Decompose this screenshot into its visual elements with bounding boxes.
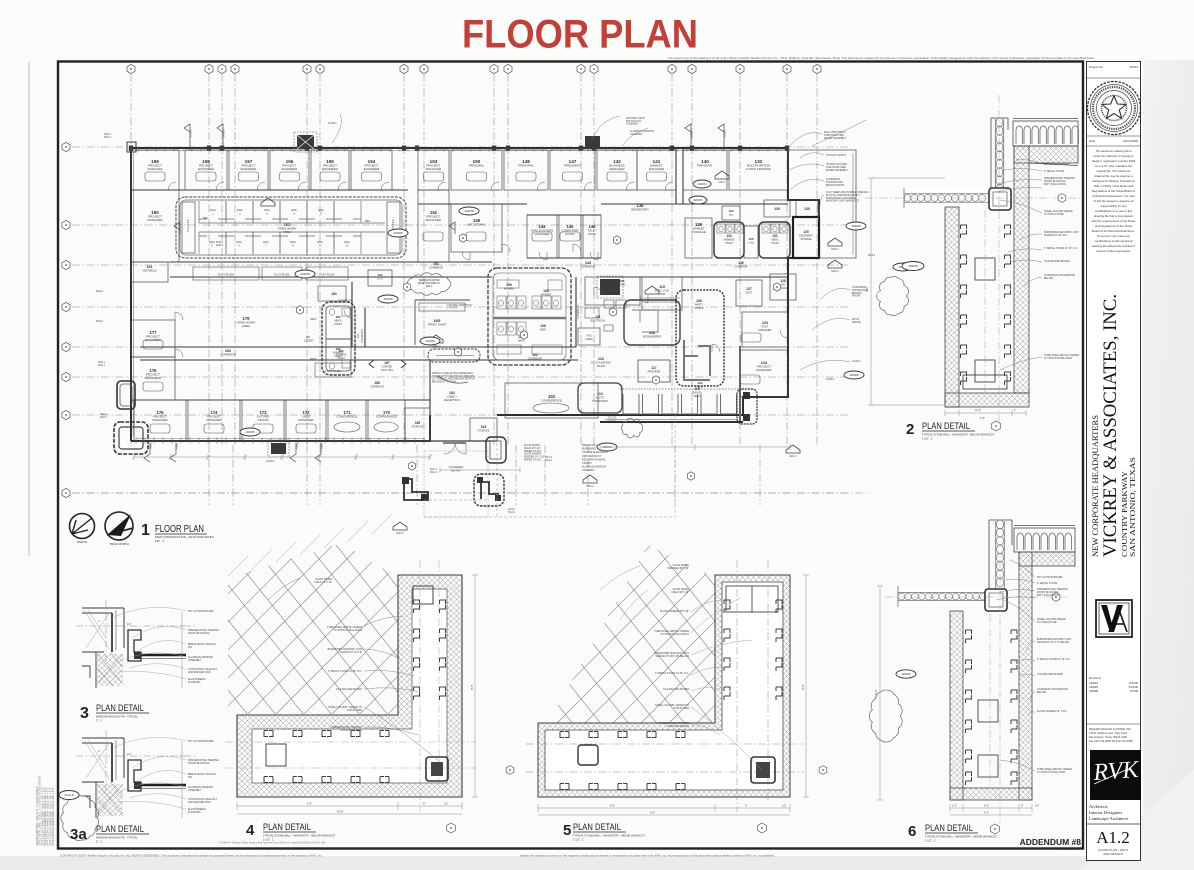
svg-text:FLOOR PLAN: FLOOR PLAN <box>462 13 698 57</box>
svg-text:ASSEMBLY: ASSEMBLY <box>630 133 643 136</box>
svg-text:drawing file may be used as a: drawing file may be used as a <box>1094 174 1133 178</box>
svg-text:164: 164 <box>377 273 382 277</box>
svg-text:5/8" GYPSUM BOARD: 5/8" GYPSUM BOARD <box>188 740 214 743</box>
svg-text:CORR.: CORR. <box>747 243 754 245</box>
svg-text:1/A4.1: 1/A4.1 <box>718 180 726 184</box>
svg-text:180: 180 <box>335 315 340 319</box>
svg-text:4: 4 <box>246 822 255 839</box>
svg-text:129: 129 <box>803 230 809 234</box>
svg-text:TRUE NORTH: TRUE NORTH <box>109 542 129 546</box>
svg-text:LOBBY /: LOBBY / <box>447 395 457 399</box>
svg-text:168: 168 <box>374 381 380 385</box>
svg-text:PLAN DETAIL: PLAN DETAIL <box>573 822 621 832</box>
svg-text:DECORATIVE METAL: DECORATIVE METAL <box>582 458 606 461</box>
svg-text:WAINSCOT 48"X 48" BELOW: WAINSCOT 48"X 48" BELOW <box>656 655 690 658</box>
svg-text:5/A6.1: 5/A6.1 <box>831 247 839 251</box>
svg-text:ELECTRICAL: ELECTRICAL <box>591 320 606 323</box>
svg-text:ADD#4: ADD#4 <box>697 182 706 186</box>
svg-text:136: 136 <box>738 261 744 265</box>
svg-text:3" : 1': 3" : 1' <box>96 719 103 723</box>
svg-text:BEC.: BEC. <box>365 219 371 223</box>
svg-text:WALL: WALL <box>426 285 433 288</box>
svg-text:WOMEN: WOMEN <box>504 287 514 291</box>
svg-text:ENGINEER: ENGINEER <box>145 376 162 380</box>
svg-text:PRINCIPAL: PRINCIPAL <box>469 164 485 168</box>
svg-text:ATTACHMENT "A": ATTACHMENT "A" <box>1056 847 1081 851</box>
svg-text:01/23/2008: 01/23/2008 <box>1123 139 1138 143</box>
svg-text:CONCRETE MASONRY: CONCRETE MASONRY <box>582 451 609 454</box>
svg-text:ENG: ENG <box>264 208 270 212</box>
svg-text:12/A6.1: 12/A6.1 <box>826 378 835 381</box>
svg-text:BROOM FINISH: BROOM FINISH <box>826 184 845 187</box>
svg-text:TILE BACKER BOARD: TILE BACKER BOARD <box>1037 673 1063 676</box>
svg-text:NORTH: NORTH <box>77 540 88 544</box>
svg-text:2: 2 <box>906 421 914 438</box>
svg-text:WAINSCOT 16"X 8": WAINSCOT 16"X 8" <box>340 651 362 654</box>
svg-text:163: 163 <box>331 292 337 296</box>
svg-text:PLAN DETAIL: PLAN DETAIL <box>922 421 970 431</box>
svg-text:TOILET: TOILET <box>334 324 343 326</box>
svg-text:5/A1.2: 5/A1.2 <box>508 511 516 514</box>
svg-text:745 E. Mulberry Ave. Sixty Fl: 745 E. Mulberry Ave. Sixty Floor <box>1089 731 1127 735</box>
svg-text:ASSEMBLY: ASSEMBLY <box>582 469 595 472</box>
svg-text:8/A6.2: 8/A6.2 <box>96 290 104 293</box>
svg-text:drawing file without the Archi: drawing file without the Architect's <box>1092 244 1136 248</box>
svg-text:MEN'S: MEN'S <box>334 321 342 323</box>
svg-text:EQUIPMENT: EQUIPMENT <box>799 236 813 238</box>
svg-text:TYPICAL STONE WALL - MAIN ENTR: TYPICAL STONE WALL - MAIN ENTRY - ABOVE … <box>925 835 997 839</box>
svg-text:8/A6.1: 8/A6.1 <box>100 416 108 419</box>
svg-text:ALUMINUM WINDOW: ALUMINUM WINDOW <box>582 466 607 469</box>
svg-text:8/A6.1: 8/A6.1 <box>295 440 299 448</box>
svg-text:1/2": 1/2" <box>444 802 449 806</box>
svg-text:8/A6.1: 8/A6.1 <box>868 254 876 257</box>
svg-text:CONFERENCE: CONFERENCE <box>541 399 562 403</box>
svg-text:1/A8.2: 1/A8.2 <box>690 129 694 137</box>
svg-text:ADD#8: ADD#8 <box>849 373 858 377</box>
svg-text:TILE BACKER BOARD: TILE BACKER BOARD <box>1044 260 1070 263</box>
svg-text:130: 130 <box>804 207 810 211</box>
svg-text:of this file agrees to assume: of this file agrees to assume all <box>1094 199 1134 203</box>
svg-text:BEC.: BEC. <box>203 216 209 220</box>
svg-text:6" METAL STUDS AT 16" O.C.: 6" METAL STUDS AT 16" O.C. <box>655 672 689 675</box>
svg-text:LUNCH TRAINING: LUNCH TRAINING <box>746 167 772 171</box>
svg-text:127: 127 <box>746 287 752 291</box>
svg-text:MEN: MEN <box>518 339 524 343</box>
svg-text:FLAT FILES: FLAT FILES <box>319 273 334 277</box>
svg-text:109: 109 <box>506 283 512 287</box>
svg-text:FLASHING: FLASHING <box>188 811 201 814</box>
svg-text:3'-6" A.F.F.: 3'-6" A.F.F. <box>447 307 458 310</box>
svg-text:Project No.: Project No. <box>1089 65 1104 69</box>
svg-text:ENG: ENG <box>318 208 324 212</box>
svg-text:SLATE VENEER 16" X 16": SLATE VENEER 16" X 16" <box>1037 710 1067 713</box>
svg-text:No person may make any: No person may make any <box>1097 234 1130 238</box>
svg-text:12/A5.1: 12/A5.1 <box>852 360 861 363</box>
svg-text:drawing file that is inconsist: drawing file that is inconsistent <box>1094 214 1133 218</box>
svg-text:133: 133 <box>728 209 733 213</box>
svg-text:6" METAL STUDS: 6" METAL STUDS <box>1037 582 1058 585</box>
svg-text:NEW CORPORATE HEADQUARTERS: NEW CORPORATE HEADQUARTERS <box>1091 415 1100 557</box>
svg-text:COPYRIGHT 2008 © Rehler Vaug: COPYRIGHT 2008 © Rehler Vaughn & Koone, … <box>60 854 323 858</box>
svg-text:TOILET: TOILET <box>725 243 734 245</box>
svg-text:Interior Designers: Interior Designers <box>1089 810 1123 815</box>
svg-text:BELOW: BELOW <box>1044 277 1054 280</box>
svg-text:ADD#6: ADD#6 <box>693 198 702 202</box>
svg-text:ENG: ENG <box>236 240 242 244</box>
svg-text:CLOS.: CLOS. <box>377 279 384 281</box>
svg-text:CORRIDOR: CORRIDOR <box>528 357 542 361</box>
svg-text:3: 3 <box>80 705 89 722</box>
svg-text:background drawing. Pursuant: background drawing. Pursuant to <box>1092 179 1135 183</box>
svg-text:ENG: ENG <box>209 240 215 244</box>
svg-text:FIN: FIN <box>188 776 192 779</box>
svg-text:TILE BACKER BOARD: TILE BACKER BOARD <box>663 688 689 691</box>
svg-text:166: 166 <box>356 333 360 338</box>
svg-text:MANAGER: MANAGER <box>147 167 163 171</box>
svg-text:WOOD BLOCKING: WOOD BLOCKING <box>667 725 689 728</box>
svg-text:ENG: ENG <box>210 208 216 212</box>
svg-text:108: 108 <box>543 289 549 293</box>
svg-text:PLAN DETAIL: PLAN DETAIL <box>263 822 311 832</box>
svg-text:ADD#8: ADD#8 <box>245 430 254 434</box>
svg-text:FLAT FILES: FLAT FILES <box>325 369 340 373</box>
svg-text:TOILET: TOILET <box>337 358 346 360</box>
svg-text:6" METAL STUDS AT 16" O.C.: 6" METAL STUDS AT 16" O.C. <box>1037 658 1071 661</box>
svg-text:WAINSCOT 48" ILM: WAINSCOT 48" ILM <box>1044 234 1067 237</box>
svg-text:A1.2: A1.2 <box>1096 828 1130 847</box>
svg-text:BATT INSULATION: BATT INSULATION <box>1037 594 1059 597</box>
svg-text:8'-0": 8'-0" <box>610 804 615 808</box>
svg-text:ENG: ENG <box>237 208 243 212</box>
svg-text:ENG: ENG <box>290 240 296 244</box>
svg-text:PRESIDENT: PRESIDENT <box>564 164 581 168</box>
svg-text:The record copy of this drawin: The record copy of this drawing is on fi… <box>668 56 1095 60</box>
svg-text:VEST.: VEST. <box>310 358 317 361</box>
svg-text:BASE THIS SIDE OF: BASE THIS SIDE OF <box>418 282 440 285</box>
svg-text:VEST.: VEST. <box>310 318 317 321</box>
svg-text:123: 123 <box>762 321 768 325</box>
svg-text:130: 130 <box>774 207 780 211</box>
svg-text:TERMINATE WOOD: TERMINATE WOOD <box>418 279 439 282</box>
svg-text:8/A6.1: 8/A6.1 <box>104 136 112 139</box>
svg-text:116: 116 <box>649 331 655 335</box>
svg-text:with the requirements of the R: with the requirements of the Rules <box>1092 219 1136 223</box>
svg-text:Regulations of the Texas Board: Regulations of the Texas Board of <box>1092 189 1136 193</box>
svg-text:CLOSET: CLOSET <box>304 339 314 342</box>
svg-text:ADD#8: ADD#8 <box>901 672 910 676</box>
svg-text:STORAGE: STORAGE <box>412 426 424 429</box>
svg-text:CONFERENCE: CONFERENCE <box>336 415 357 419</box>
svg-text:8/A6.1: 8/A6.1 <box>216 244 224 247</box>
svg-text:FIELD 16"X 16": FIELD 16"X 16" <box>315 581 333 584</box>
svg-text:ASSEMBLY: ASSEMBLY <box>626 123 639 126</box>
svg-text:FILES: FILES <box>597 364 605 368</box>
svg-text:2/A8.2: 2/A8.2 <box>222 129 226 137</box>
svg-text:115: 115 <box>659 285 665 289</box>
svg-text:SUPERVISOR: SUPERVISOR <box>592 400 608 403</box>
svg-text:WOMENS: WOMENS <box>336 355 347 357</box>
svg-text:128: 128 <box>780 279 786 283</box>
svg-text:ADDENDUM #8: ADDENDUM #8 <box>1020 837 1082 847</box>
svg-text:1'-0": 1'-0" <box>952 805 957 808</box>
svg-text:MENS: MENS <box>772 240 779 242</box>
svg-text:167: 167 <box>384 361 390 365</box>
svg-text:ENGINEER: ENGINEER <box>198 167 215 171</box>
svg-text:1/2": 1/2" <box>782 804 787 808</box>
svg-text:8/A6.1: 8/A6.1 <box>149 440 153 448</box>
svg-text:FILES: FILES <box>609 420 616 423</box>
svg-text:6'-0": 6'-0" <box>307 802 312 806</box>
svg-text:3" : 1': 3" : 1' <box>96 840 103 844</box>
svg-text:express written permission.: express written permission. <box>1096 249 1131 253</box>
svg-text:MANAGER: MANAGER <box>649 167 665 171</box>
svg-text:5/8" GYPSUM BOARD: 5/8" GYPSUM BOARD <box>1044 163 1070 166</box>
svg-text:FILE: FILE <box>587 336 592 338</box>
svg-text:FIELD 48"X 48": FIELD 48"X 48" <box>672 591 690 594</box>
svg-text:PICK-UPS: PICK-UPS <box>381 369 393 372</box>
svg-text:169: 169 <box>415 421 421 425</box>
svg-text:CORRIDOR: CORRIDOR <box>429 266 443 270</box>
svg-text:6" METAL STUDS AT 16" O.C.: 6" METAL STUDS AT 16" O.C. <box>328 670 362 673</box>
svg-text:8/A6.1: 8/A6.1 <box>320 440 324 448</box>
svg-text:ENG: ENG <box>291 208 297 212</box>
svg-text:LOW WALL PARTITION: LOW WALL PARTITION <box>447 304 472 307</box>
svg-text:AREA: AREA <box>242 324 250 328</box>
svg-text:responsibility for any: responsibility for any <box>1100 204 1127 208</box>
svg-text:Rule 1.105(b) of the Rules and: Rule 1.105(b) of the Rules and <box>1094 184 1134 188</box>
svg-text:Architects: Architects <box>1089 804 1108 809</box>
svg-text:The electronic drawing file is: The electronic drawing file is <box>1095 149 1132 153</box>
svg-text:8'-8": 8'-8" <box>470 684 474 690</box>
svg-text:TO STRUCTURE: TO STRUCTURE <box>1037 621 1057 624</box>
svg-text:ASSEMBLY: ASSEMBLY <box>188 659 202 662</box>
svg-text:4": 4" <box>1014 409 1016 412</box>
svg-text:REFER TO A8.1: REFER TO A8.1 <box>524 459 542 462</box>
svg-text:1: 1 <box>141 522 150 539</box>
svg-text:San Antonio, Texas 78212-3166: San Antonio, Texas 78212-3166 <box>1089 735 1128 739</box>
svg-text:WINDOW MAULING FIN - TYPICAL: WINDOW MAULING FIN - TYPICAL <box>96 836 138 840</box>
svg-text:ENG: ENG <box>344 240 350 244</box>
svg-text:9/A4.1: 9/A4.1 <box>586 484 594 488</box>
svg-text:1": 1" <box>98 750 100 753</box>
svg-text:9'-0": 9'-0" <box>650 811 655 815</box>
svg-text:105: 105 <box>569 309 573 314</box>
svg-text:117: 117 <box>651 366 656 370</box>
svg-text:MANAGER: MANAGER <box>147 218 163 222</box>
svg-text:ENGINEER: ENGINEER <box>241 167 258 171</box>
svg-text:1/2": 1/2" <box>127 623 131 626</box>
svg-text:5/8" GYPSUM BOARD: 5/8" GYPSUM BOARD <box>1037 576 1063 579</box>
svg-text:FLAT FILE: FLAT FILE <box>186 219 190 232</box>
svg-text:CANOPY: CANOPY <box>582 462 593 465</box>
svg-text:FINISH: FINISH <box>852 295 860 298</box>
svg-text:ABOVE: ABOVE <box>852 321 861 324</box>
svg-text:Vaughn, registration number 54: Vaughn, registration number 5433 <box>1092 159 1136 163</box>
svg-text:151: 151 <box>433 262 439 266</box>
svg-text:ADD#8: ADD#8 <box>1089 689 1098 693</box>
svg-text:TO STRUCTURE: TO STRUCTURE <box>1044 213 1064 216</box>
svg-text:134: 134 <box>726 234 732 238</box>
svg-text:11'-2": 11'-2" <box>975 409 981 412</box>
svg-text:131: 131 <box>772 234 778 238</box>
svg-text:SECRETARY: SECRETARY <box>467 223 485 227</box>
svg-text:AND BACKER ROD: AND BACKER ROD <box>188 671 211 674</box>
svg-text:1-1/2" : 1': 1-1/2" : 1' <box>922 437 933 441</box>
svg-text:2'-0": 2'-0" <box>980 417 985 420</box>
svg-text:ROOM: ROOM <box>565 232 575 236</box>
svg-text:CHIEFS: CHIEFS <box>694 307 704 310</box>
svg-text:9": 9" <box>1021 805 1023 808</box>
svg-text:UNIT WAINSCOT: UNIT WAINSCOT <box>582 455 602 458</box>
svg-text:CORRIDOR: CORRIDOR <box>581 265 595 269</box>
svg-text:BELOW: BELOW <box>1037 691 1047 694</box>
svg-text:TO STRUCTURAL PAINT: TO STRUCTURAL PAINT <box>333 629 362 632</box>
svg-text:6/A4.1: 6/A4.1 <box>789 454 797 458</box>
svg-text:TYPICAL STONE WALL - MAIN ENTR: TYPICAL STONE WALL - MAIN ENTRY - BELOW … <box>922 433 995 437</box>
svg-text:FIN: FIN <box>188 646 192 649</box>
svg-text:WOOD BLOCKING: WOOD BLOCKING <box>340 729 362 732</box>
svg-text:STUCCO SOFFIT: STUCCO SOFFIT <box>826 154 847 157</box>
svg-text:TOILET: TOILET <box>771 243 780 245</box>
svg-text:1/A8.2: 1/A8.2 <box>189 129 193 137</box>
svg-text:ADD#8: ADD#8 <box>383 297 392 301</box>
svg-text:VICKREY & ASSOCIATES, INC.: VICKREY & ASSOCIATES, INC. <box>1101 294 1121 557</box>
svg-text:STORAGE: STORAGE <box>478 430 490 433</box>
svg-text:PLAN DETAIL: PLAN DETAIL <box>96 824 144 834</box>
svg-text:1/8" : 1': 1/8" : 1' <box>155 539 165 543</box>
svg-text:PLAN DETAIL: PLAN DETAIL <box>925 823 973 833</box>
svg-text:MANAGER: MANAGER <box>426 218 442 222</box>
svg-text:MANAGER: MANAGER <box>534 232 550 236</box>
svg-text:SLATE VENEER 48"X 48": SLATE VENEER 48"X 48" <box>660 610 689 613</box>
svg-text:MANAGER: MANAGER <box>609 167 625 171</box>
svg-text:2/A8.2: 2/A8.2 <box>723 129 727 137</box>
svg-text:ASST.: ASST. <box>761 325 768 329</box>
svg-text:CORRIDOR: CORRIDOR <box>576 305 580 319</box>
svg-text:9/A4.1: 9/A4.1 <box>396 531 404 535</box>
svg-text:9": 9" <box>745 804 747 808</box>
svg-text:8/A1.1: 8/A1.1 <box>430 471 438 474</box>
svg-text:104: 104 <box>481 425 487 429</box>
svg-text:Revisions: Revisions <box>1089 676 1102 680</box>
svg-text:8/4/08: 8/4/08 <box>1130 689 1138 693</box>
svg-text:SAN ANTONIO, TEXAS: SAN ANTONIO, TEXAS <box>1128 457 1137 557</box>
svg-text:1-1/2" : 1': 1-1/2" : 1' <box>925 839 936 843</box>
svg-text:8/A6.1: 8/A6.1 <box>175 440 179 448</box>
svg-text:11/A9.1: 11/A9.1 <box>266 459 275 463</box>
svg-text:SECRETARY: SECRETARY <box>631 208 649 212</box>
svg-text:PRINTERS: PRINTERS <box>648 371 661 374</box>
svg-text:9": 9" <box>423 802 425 806</box>
svg-text:102: 102 <box>532 353 538 357</box>
svg-text:RATED ASSEMBLY: RATED ASSEMBLY <box>826 169 848 172</box>
svg-text:ADD#8: ADD#8 <box>851 224 860 228</box>
svg-text:WINDOW MAULING FIN - TYPICAL: WINDOW MAULING FIN - TYPICAL <box>96 715 138 719</box>
svg-text:BORDER 48"X 48": BORDER 48"X 48" <box>668 567 689 570</box>
svg-text:FLASHING: FLASHING <box>188 681 201 684</box>
svg-text:TO STRUCTURAL PAINT: TO STRUCTURAL PAINT <box>1037 771 1066 774</box>
svg-text:and Regulations of the Texas: and Regulations of the Texas <box>1095 224 1133 228</box>
svg-text:RATED ASSEMBLY: RATED ASSEMBLY <box>824 137 846 140</box>
svg-text:PRINCIPAL: PRINCIPAL <box>697 164 713 168</box>
svg-text:modifications to or use of thi: modifications to or use of this <box>1095 209 1133 213</box>
svg-text:Fax 210-733-3535 Tel 210-733-: Fax 210-733-3535 Tel 210-733-3535 <box>1089 739 1133 743</box>
svg-text:SCALE: SCALE <box>64 793 73 797</box>
svg-text:ADD#8: ADD#8 <box>425 339 434 343</box>
svg-text:8/A1.2: 8/A1.2 <box>545 459 553 462</box>
svg-text:BURNISHED: BURNISHED <box>582 448 596 451</box>
svg-text:1": 1" <box>98 620 100 623</box>
svg-text:ENTRY: ENTRY <box>451 469 461 473</box>
svg-text:MANAGER: MANAGER <box>756 368 772 372</box>
svg-text:BOOKKEEPER: BOOKKEEPER <box>643 335 661 339</box>
svg-text:MASONRY UNIT WAINSCOT: MASONRY UNIT WAINSCOT <box>826 200 860 203</box>
svg-text:VEST.: VEST. <box>746 292 753 295</box>
svg-text:143: 143 <box>585 261 591 265</box>
svg-text:161: 161 <box>147 265 153 269</box>
svg-text:under the authority of George: under the authority of George F. <box>1093 154 1134 158</box>
svg-text:5: 5 <box>563 822 571 839</box>
svg-text:ADD#8: ADD#8 <box>300 272 309 276</box>
svg-text:STRUCTURE: STRUCTURE <box>674 707 690 710</box>
svg-text:AREA: AREA <box>283 230 291 234</box>
svg-text:ADD#8: ADD#8 <box>908 264 917 268</box>
svg-text:5/A6.2: 5/A6.2 <box>831 269 839 273</box>
svg-text:AND DETAILS: AND DETAILS <box>1103 852 1122 856</box>
svg-text:Architectural Examiners, the u: Architectural Examiners, the user <box>1092 194 1135 198</box>
svg-text:6: 6 <box>908 823 916 840</box>
svg-text:REHLER VAUGHN & KOONE, INC.: REHLER VAUGHN & KOONE, INC. <box>1089 727 1132 731</box>
svg-text:original file. This electroni: original file. This electronic <box>1096 169 1131 173</box>
svg-text:WOMENS: WOMENS <box>724 240 735 242</box>
svg-text:MANAGER: MANAGER <box>152 418 168 422</box>
svg-text:JAN.: JAN. <box>729 214 734 217</box>
svg-text:BREAK METAL RAILING: BREAK METAL RAILING <box>188 773 216 776</box>
svg-text:Landscape Architects: Landscape Architects <box>1089 816 1129 821</box>
svg-text:WOOD BLOCKING: WOOD BLOCKING <box>188 632 210 635</box>
svg-text:Neither the printed document n: Neither the printed document nor the mag… <box>520 854 775 858</box>
svg-text:MANAGER: MANAGER <box>426 167 442 171</box>
svg-text:CORRIDOR: CORRIDOR <box>370 386 384 389</box>
svg-text:ENGINEER: ENGINEER <box>322 167 339 171</box>
svg-text:BATT INSULATION: BATT INSULATION <box>1044 183 1066 186</box>
svg-text:BREAK METAL RAILING: BREAK METAL RAILING <box>188 643 216 646</box>
svg-text:Date: Date <box>1089 139 1096 143</box>
svg-text:182: 182 <box>338 349 343 353</box>
svg-text:8'-8": 8'-8" <box>801 684 805 690</box>
svg-text:111: 111 <box>595 315 600 319</box>
svg-text:126: 126 <box>696 299 702 303</box>
svg-text:120: 120 <box>697 381 702 385</box>
svg-text:5'-0": 5'-0" <box>984 805 989 808</box>
svg-text:WAINSCOT 16"X 8" BELOW: WAINSCOT 16"X 8" BELOW <box>1037 641 1070 644</box>
svg-text:CLERK: CLERK <box>585 339 593 341</box>
svg-text:UTPT1-CDSPLE NAME5.DWG - SCALE: UTPT1-CDSPLE NAME5.DWG - SCALE: 3/4" = 1… <box>52 787 55 846</box>
svg-text:1-1/2" : 1': 1-1/2" : 1' <box>263 838 274 842</box>
svg-text:1-1/2" : 1': 1-1/2" : 1' <box>573 838 584 842</box>
svg-text:TYPICAL STONE WALL - MAIN ENTR: TYPICAL STONE WALL - MAIN ENTRY - BELOW … <box>263 834 336 838</box>
svg-text:CORRIDOR: CORRIDOR <box>361 329 364 343</box>
svg-text:on 1-3-70, who maintains the: on 1-3-70, who maintains the <box>1095 164 1133 168</box>
svg-text:modifications to this electron: modifications to this electronic <box>1094 239 1133 243</box>
svg-text:Board of Architectural Examine: Board of Architectural Examiners. <box>1092 229 1135 233</box>
svg-text:CORRIDOR: CORRIDOR <box>220 353 235 357</box>
svg-text:106: 106 <box>540 324 546 328</box>
svg-text:8/A6.2: 8/A6.2 <box>96 320 104 323</box>
svg-text:ADD#8: ADD#8 <box>464 209 473 213</box>
svg-text:3a: 3a <box>70 826 87 843</box>
